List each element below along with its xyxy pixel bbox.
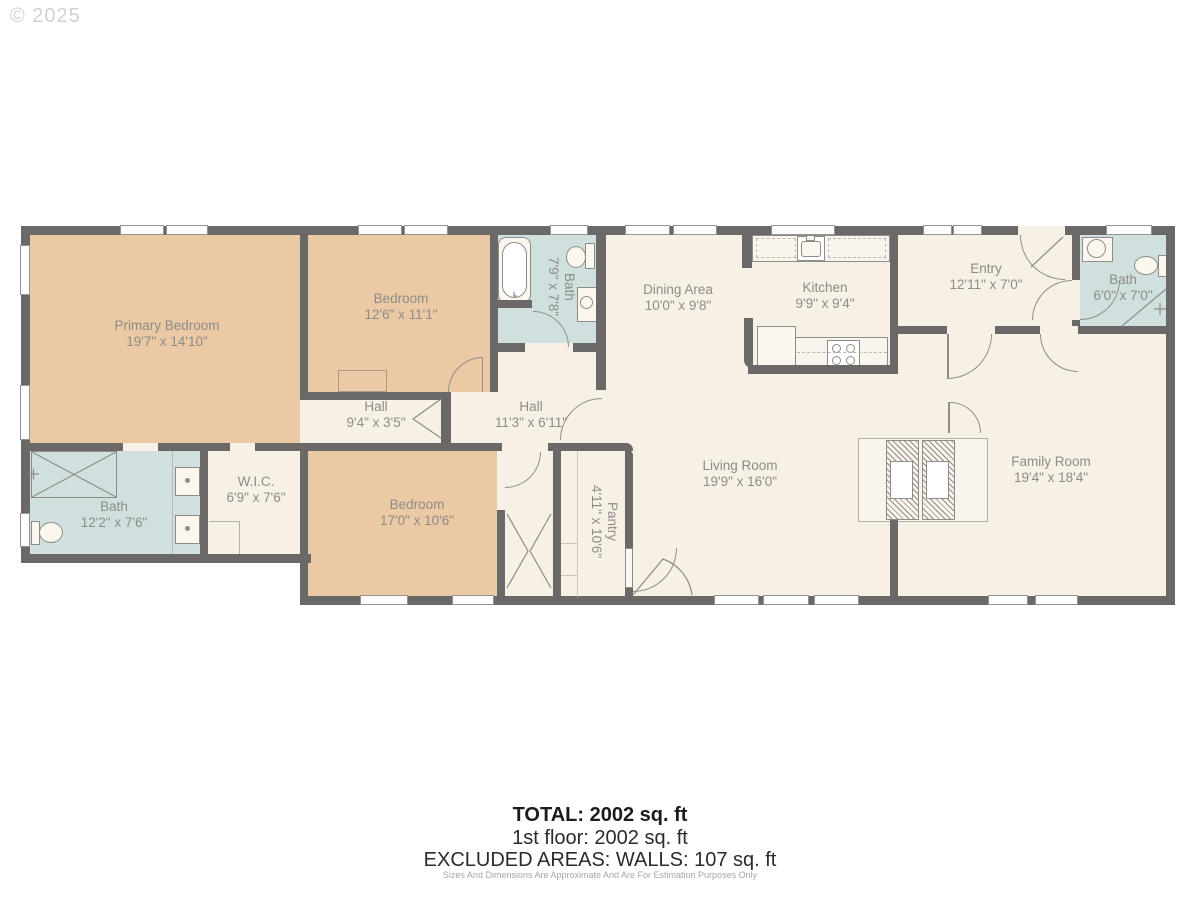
pantry-shelf-line: [561, 543, 577, 544]
vanity-counter-line: [172, 451, 173, 554]
room-label-hall-small: Hall9'4" x 3'5": [346, 399, 405, 431]
window: [625, 225, 670, 235]
wall: [30, 443, 123, 451]
room-label-entry: Entry12'11" x 7'0": [949, 261, 1022, 293]
window: [953, 225, 982, 235]
wall: [548, 443, 633, 451]
refrigerator: [757, 326, 796, 368]
pantry-shelf-line: [561, 575, 577, 576]
wall: [596, 235, 606, 390]
burner: [846, 356, 855, 365]
door-leaf: [625, 548, 633, 588]
window: [988, 595, 1028, 605]
window: [404, 225, 448, 235]
window: [1035, 595, 1078, 605]
floorplan-page: © 2025: [0, 0, 1200, 900]
sink-basin: [185, 478, 190, 483]
wall: [300, 443, 308, 596]
disclaimer-text: Sizes And Dimensions Are Approximate And…: [443, 870, 757, 880]
wall: [490, 343, 525, 352]
wall: [441, 392, 451, 443]
window: [452, 595, 494, 605]
wall: [1072, 235, 1080, 280]
wall: [553, 451, 561, 597]
closet-rod: [209, 521, 240, 557]
faucet: [806, 235, 815, 241]
counter-dash-line: [797, 352, 887, 353]
wall: [625, 449, 633, 548]
room-label-primary-bath: Bath12'2" x 7'6": [81, 499, 148, 531]
window: [20, 245, 30, 295]
window: [763, 595, 809, 605]
window: [714, 595, 759, 605]
room-label-family: Family Room19'4" x 18'4": [1011, 454, 1091, 486]
first-floor-area-text: 1st floor: 2002 sq. ft: [512, 827, 688, 850]
window: [360, 595, 408, 605]
wall: [200, 451, 208, 554]
excluded-areas-text: EXCLUDED AREAS: WALLS: 107 sq. ft: [424, 849, 777, 872]
window: [923, 225, 952, 235]
window: [358, 225, 402, 235]
room-label-kitchen: Kitchen9'9" x 9'4": [795, 280, 854, 312]
room-label-pantry: Pantry4'11" x 10'6": [588, 460, 620, 584]
door-leaf: [482, 357, 483, 392]
wall: [300, 443, 502, 451]
firebox-opening: [890, 461, 913, 499]
wall: [1166, 226, 1175, 605]
window: [166, 225, 208, 235]
door-leaf: [948, 402, 950, 433]
window: [673, 225, 717, 235]
window: [814, 595, 859, 605]
window: [20, 513, 30, 547]
burner: [832, 356, 841, 365]
room-label-hall-bath: Bath7'9" x 7'8": [545, 231, 577, 343]
bathtub-basin: [502, 242, 527, 298]
upper-cabinet: [756, 238, 796, 258]
wall: [995, 326, 1040, 334]
shower: [31, 451, 117, 498]
room-label-living: Living Room19'9" x 16'0": [702, 458, 777, 490]
wall: [300, 235, 308, 400]
wall: [742, 226, 752, 268]
total-area-text: TOTAL: 2002 sq. ft: [513, 804, 688, 827]
wall: [158, 443, 230, 451]
upper-cabinet: [828, 238, 886, 258]
wall: [255, 443, 300, 451]
wall: [625, 588, 633, 597]
window: [20, 385, 30, 440]
sink-basin: [1087, 239, 1106, 258]
door-leaf: [947, 334, 949, 378]
kitchen-sink-basin: [801, 241, 821, 257]
room-label-bedroom2: Bedroom12'6" x 11'1": [364, 291, 437, 323]
room-label-bedroom3: Bedroom17'0" x 10'6": [380, 497, 454, 529]
sink-basin: [580, 296, 593, 309]
wall: [497, 510, 505, 597]
room-label-dining: Dining Area10'0" x 9'8": [643, 282, 713, 314]
dresser: [338, 370, 387, 392]
room-label-wic: W.I.C.6'9" x 7'6": [226, 474, 285, 506]
window: [1106, 225, 1152, 235]
wall: [1072, 320, 1080, 326]
wall: [1078, 326, 1166, 334]
wall: [744, 318, 753, 368]
wall: [898, 326, 947, 334]
room-label-entry-bath: Bath6'0" x 7'0": [1093, 272, 1152, 304]
wall: [890, 235, 898, 372]
room-label-hall-main: Hall11'3" x 6'11": [495, 399, 567, 431]
window: [771, 225, 835, 235]
copyright-watermark: © 2025: [10, 5, 81, 28]
wall: [748, 365, 898, 374]
toilet-bowl: [39, 522, 63, 543]
wall: [490, 235, 498, 392]
window: [120, 225, 164, 235]
room-label-primary-bedroom: Primary Bedroom19'7" x 14'10": [114, 318, 219, 350]
toilet-tank: [585, 243, 595, 269]
sink-basin: [185, 526, 190, 531]
firebox-opening: [926, 461, 949, 499]
wall: [21, 554, 311, 563]
pantry-shelf-line: [577, 451, 578, 597]
wall: [890, 520, 898, 597]
wall: [490, 300, 532, 308]
